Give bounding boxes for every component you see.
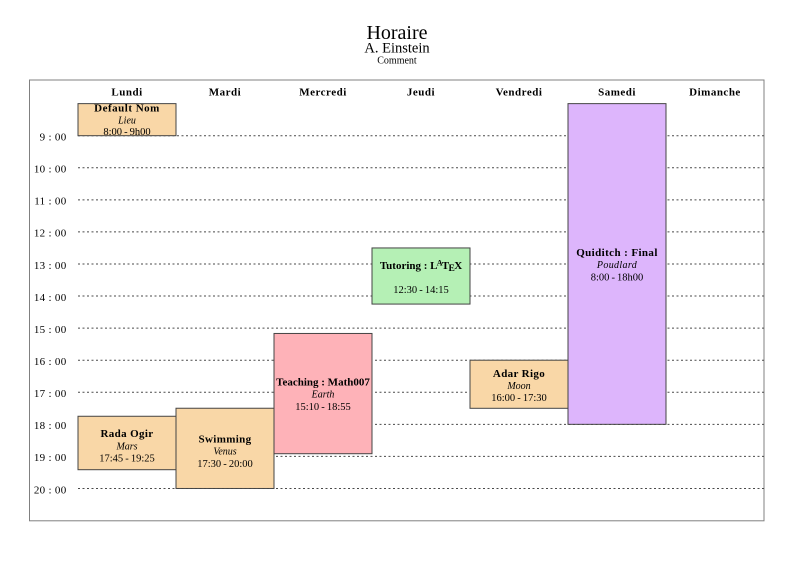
svg-text:Jeudi: Jeudi [407,87,435,99]
svg-text:Venus: Venus [213,447,236,458]
svg-text:8:00 - 18h00: 8:00 - 18h00 [591,272,644,283]
svg-text:10 : 00: 10 : 00 [34,164,67,176]
svg-text:9 : 00: 9 : 00 [40,132,67,144]
svg-text:Teaching : Math007: Teaching : Math007 [276,376,370,388]
svg-text:16 : 00: 16 : 00 [34,356,67,368]
svg-text:20 : 00: 20 : 00 [34,484,67,496]
svg-text:Comment: Comment [377,56,417,67]
svg-text:15 : 00: 15 : 00 [34,324,67,336]
svg-text:Vendredi: Vendredi [496,87,543,99]
svg-text:Mercredi: Mercredi [299,87,347,99]
svg-text:Mardi: Mardi [209,87,241,99]
svg-text:16:00 - 17:30: 16:00 - 17:30 [491,393,547,404]
svg-text:19 : 00: 19 : 00 [34,452,67,464]
svg-text:17 : 00: 17 : 00 [34,388,67,400]
svg-text:A. Einstein: A. Einstein [364,41,430,57]
svg-text:12:30 - 14:15: 12:30 - 14:15 [393,285,449,296]
svg-text:Default Nom: Default Nom [94,103,160,115]
svg-text:Adar Rigo: Adar Rigo [493,368,545,380]
svg-text:Quiditch : Final: Quiditch : Final [576,247,658,259]
svg-text:18 : 00: 18 : 00 [34,420,67,432]
svg-text:Lieu: Lieu [117,116,136,127]
svg-text:Moon: Moon [506,381,530,392]
svg-text:8:00 - 9h00: 8:00 - 9h00 [103,127,150,138]
svg-text:Earth: Earth [311,390,335,401]
svg-text:13 : 00: 13 : 00 [34,260,67,272]
svg-text:Poudlard: Poudlard [596,260,638,271]
svg-text:Swimming: Swimming [199,434,252,446]
svg-text:17:45 - 19:25: 17:45 - 19:25 [99,454,155,465]
svg-text:Lundi: Lundi [111,87,142,99]
svg-text:Dimanche: Dimanche [689,87,741,99]
svg-text:17:30 - 20:00: 17:30 - 20:00 [197,459,253,470]
svg-text:12 : 00: 12 : 00 [34,228,67,240]
svg-text:Mars: Mars [115,441,137,452]
svg-text:Samedi: Samedi [598,87,636,99]
svg-text:11 : 00: 11 : 00 [34,196,66,208]
svg-text:14 : 00: 14 : 00 [34,292,67,304]
svg-text:15:10 - 18:55: 15:10 - 18:55 [295,402,351,413]
svg-text:Rada Ogir: Rada Ogir [101,428,154,440]
